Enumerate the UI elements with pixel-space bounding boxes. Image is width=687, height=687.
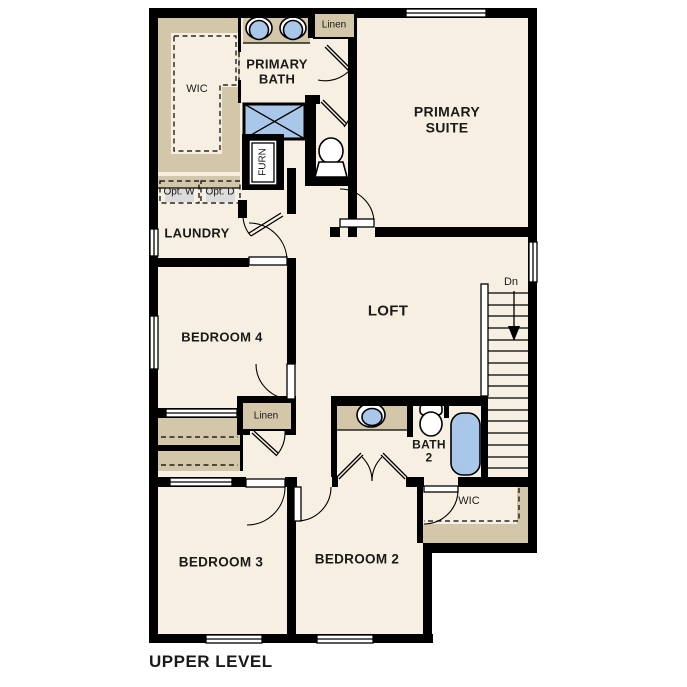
label-opt-washer: Opt. W [161,186,197,197]
room-label-bath2: BATH 2 [407,439,451,466]
sink-icon [362,409,382,426]
sink-icon [250,21,269,40]
sliding-door-icon [170,478,232,486]
bathtub-icon [451,413,480,475]
room-label-bedroom2: BEDROOM 2 [315,551,399,566]
room-label-linen-upper: Linen [322,19,346,30]
primary-bath-vanity [243,17,310,43]
room-label-wic-secondary: WIC [439,495,499,507]
window-icon [150,229,158,256]
room-label-bedroom3: BEDROOM 3 [179,554,263,569]
bath2-toilet-icon [420,404,442,436]
room-label-bedroom4: BEDROOM 4 [181,331,262,346]
window-icon [317,635,373,643]
room-label-wic-primary: WIC [167,83,227,95]
shower-icon [244,104,305,139]
sink-icon [284,21,303,40]
room-label-linen-lower: Linen [254,410,278,421]
label-opt-dryer: Opt. D [202,186,238,197]
window-icon [150,316,158,369]
label-stairs-down: Dn [504,276,518,288]
bedroom-closet-shelving [158,418,243,471]
stair-railing [481,284,488,396]
bath2-vanity [337,403,407,430]
room-label-primary-bath: PRIMARY BATH [229,57,325,86]
floor-plan: WIC PRIMARY BATH Linen PRIMARY SUITE Opt… [0,0,687,687]
room-label-primary-suite: PRIMARY SUITE [392,104,502,135]
sliding-door-icon [166,409,237,417]
window-icon [206,635,262,643]
floor-plan-drawing [0,0,687,687]
label-furnace: FURN [257,148,268,176]
window-icon [406,9,486,17]
window-icon [529,242,537,282]
room-label-laundry: LAUNDRY [164,227,229,242]
page-title: UPPER LEVEL [149,652,273,671]
room-label-loft: LOFT [368,304,408,321]
